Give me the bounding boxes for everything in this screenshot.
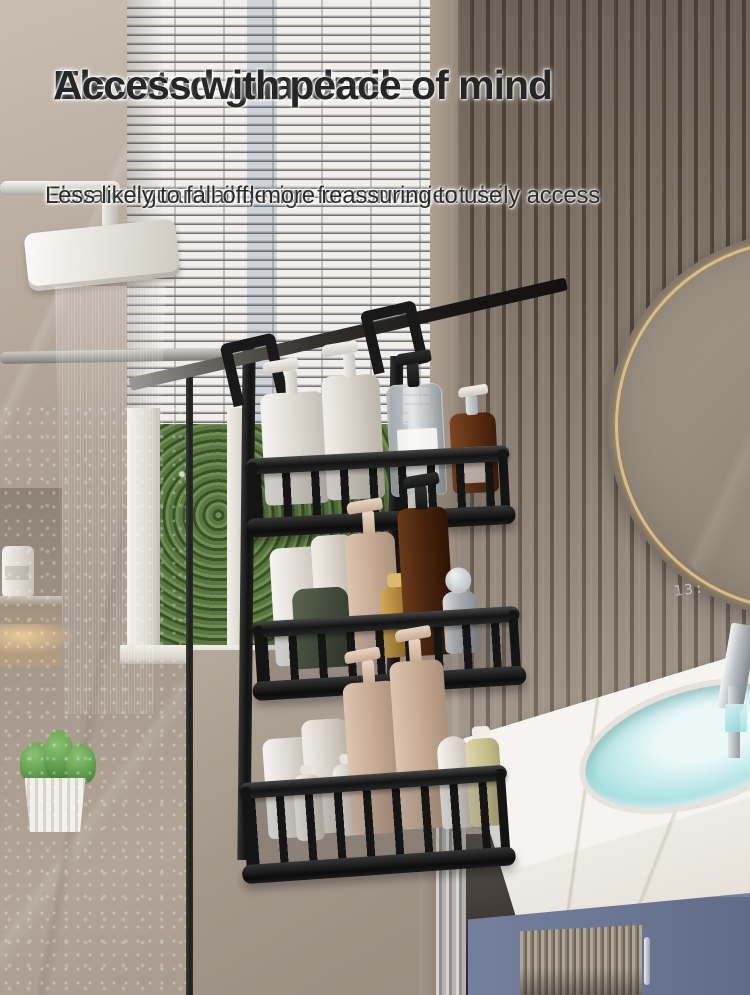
caddy-basket-bottom [230, 641, 514, 891]
cabinet-handle [644, 937, 650, 985]
glass-water-droplets [0, 402, 192, 995]
faucet-water [725, 704, 747, 732]
product-photo-bathroom-scene: 13: [0, 0, 750, 995]
subheadline-line2: Less likely to fall off, more reassuring… [45, 179, 502, 212]
shower-glass-edge [186, 372, 193, 995]
faucet [700, 624, 750, 756]
cabinet-ribbed-glass-door [520, 925, 642, 995]
headline-line2: Access with peace of mind [53, 60, 552, 110]
